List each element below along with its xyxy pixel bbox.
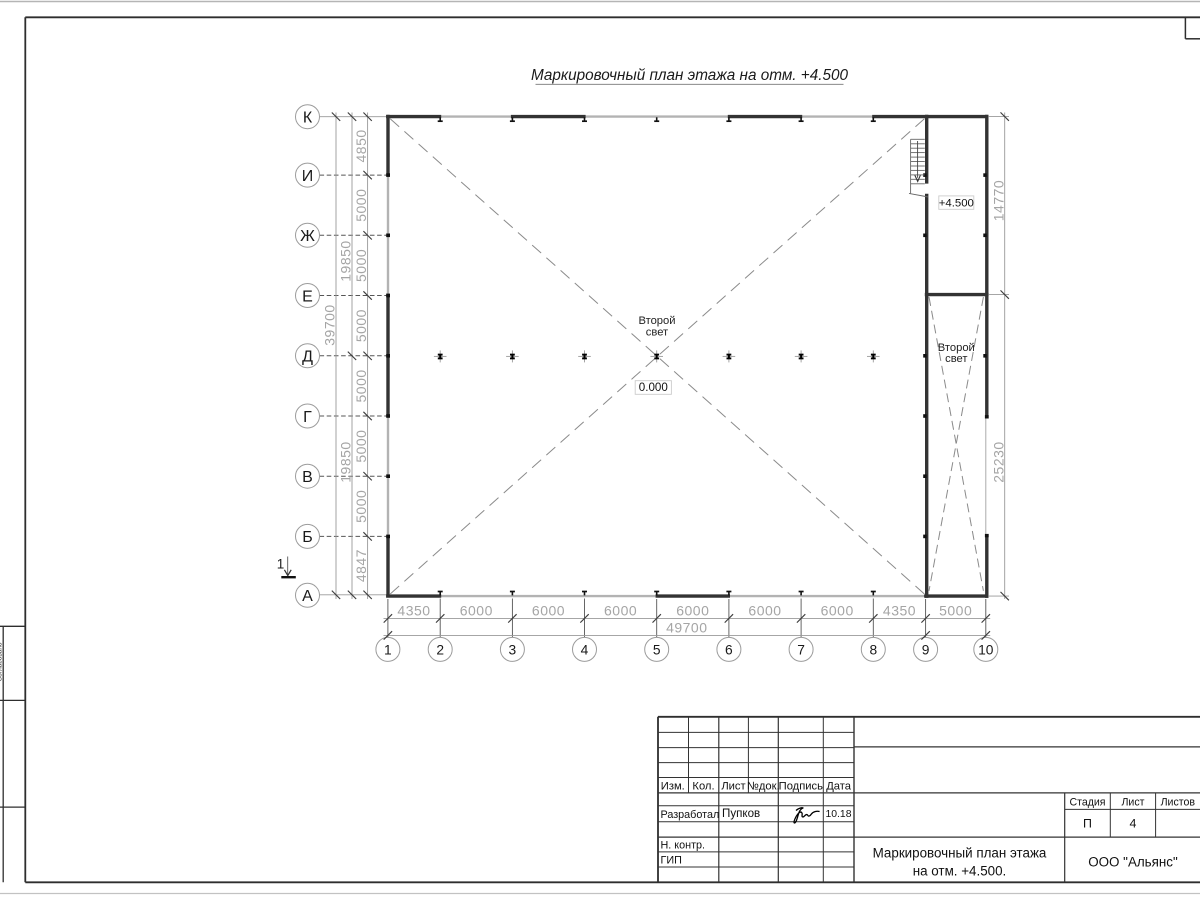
svg-text:Б: Б bbox=[302, 529, 313, 546]
svg-text:4350: 4350 bbox=[883, 603, 916, 619]
svg-text:39700: 39700 bbox=[322, 304, 338, 345]
svg-text:свет: свет bbox=[945, 353, 967, 365]
svg-text:3: 3 bbox=[509, 642, 517, 657]
svg-text:И: И bbox=[302, 168, 314, 185]
svg-text:Листов: Листов bbox=[1161, 797, 1196, 809]
svg-text:Кол.: Кол. bbox=[692, 780, 714, 792]
svg-text:Дата: Дата bbox=[826, 780, 852, 792]
svg-text:К: К bbox=[303, 110, 313, 127]
svg-text:+4.500: +4.500 bbox=[939, 197, 974, 209]
svg-text:П: П bbox=[1083, 817, 1092, 831]
svg-text:5000: 5000 bbox=[353, 369, 369, 402]
svg-text:4350: 4350 bbox=[397, 603, 430, 619]
svg-text:Стадия: Стадия bbox=[1069, 797, 1105, 809]
svg-text:10: 10 bbox=[978, 642, 994, 657]
svg-text:6: 6 bbox=[725, 642, 733, 657]
svg-text:свет: свет bbox=[646, 327, 668, 339]
svg-text:8: 8 bbox=[869, 642, 877, 657]
svg-text:5000: 5000 bbox=[353, 189, 369, 222]
svg-text:Пупков: Пупков bbox=[722, 807, 760, 820]
svg-text:№док.: №док. bbox=[747, 780, 780, 792]
svg-text:Д: Д bbox=[302, 349, 313, 366]
svg-text:Согласовано: Согласовано bbox=[0, 642, 4, 681]
svg-text:4: 4 bbox=[1130, 817, 1137, 831]
svg-text:6000: 6000 bbox=[460, 603, 493, 619]
svg-text:Подпись: Подпись bbox=[779, 780, 823, 792]
svg-text:Изм.: Изм. bbox=[661, 780, 685, 792]
svg-text:5000: 5000 bbox=[939, 603, 972, 619]
svg-text:5000: 5000 bbox=[353, 249, 369, 282]
svg-text:5000: 5000 bbox=[353, 490, 369, 523]
svg-text:6000: 6000 bbox=[604, 603, 637, 619]
svg-text:ГИП: ГИП bbox=[661, 855, 682, 867]
svg-text:4: 4 bbox=[581, 642, 589, 657]
svg-text:0.000: 0.000 bbox=[639, 381, 668, 394]
svg-text:В: В bbox=[302, 469, 313, 486]
svg-text:5000: 5000 bbox=[353, 430, 369, 463]
svg-text:Лист: Лист bbox=[1121, 797, 1144, 809]
svg-text:6000: 6000 bbox=[676, 603, 709, 619]
svg-text:7: 7 bbox=[797, 642, 805, 657]
svg-text:на отм. +4.500.: на отм. +4.500. bbox=[913, 864, 1007, 879]
svg-text:Г: Г bbox=[303, 409, 312, 426]
svg-text:Е: Е bbox=[302, 288, 313, 305]
svg-text:Разработал: Разработал bbox=[661, 809, 720, 821]
svg-text:6000: 6000 bbox=[821, 603, 854, 619]
svg-text:25230: 25230 bbox=[991, 441, 1007, 482]
svg-text:5000: 5000 bbox=[353, 309, 369, 342]
svg-text:4850: 4850 bbox=[353, 129, 369, 162]
svg-text:9: 9 bbox=[922, 642, 930, 657]
svg-text:Ж: Ж bbox=[300, 228, 315, 245]
svg-text:19850: 19850 bbox=[338, 441, 354, 482]
svg-text:1: 1 bbox=[384, 642, 392, 657]
svg-text:10.18: 10.18 bbox=[825, 809, 851, 820]
svg-text:19850: 19850 bbox=[338, 240, 354, 281]
svg-text:49700: 49700 bbox=[666, 619, 707, 635]
svg-text:6000: 6000 bbox=[748, 603, 781, 619]
svg-text:ООО "Альянс": ООО "Альянс" bbox=[1088, 855, 1178, 870]
svg-text:Второй: Второй bbox=[638, 315, 675, 327]
svg-text:Н. контр.: Н. контр. bbox=[661, 840, 706, 852]
svg-text:2: 2 bbox=[436, 642, 444, 657]
svg-text:1: 1 bbox=[277, 557, 285, 572]
svg-text:4847: 4847 bbox=[353, 549, 369, 582]
svg-text:6000: 6000 bbox=[532, 603, 565, 619]
svg-text:А: А bbox=[302, 588, 313, 605]
svg-text:Лист: Лист bbox=[721, 780, 745, 792]
svg-text:5: 5 bbox=[653, 642, 661, 657]
svg-text:Маркировочный план этажа на от: Маркировочный план этажа на отм. +4.500 bbox=[531, 67, 849, 84]
svg-text:Маркировочный план этажа: Маркировочный план этажа bbox=[873, 846, 1047, 861]
svg-text:Второй: Второй bbox=[938, 342, 975, 354]
svg-text:14770: 14770 bbox=[991, 180, 1007, 221]
